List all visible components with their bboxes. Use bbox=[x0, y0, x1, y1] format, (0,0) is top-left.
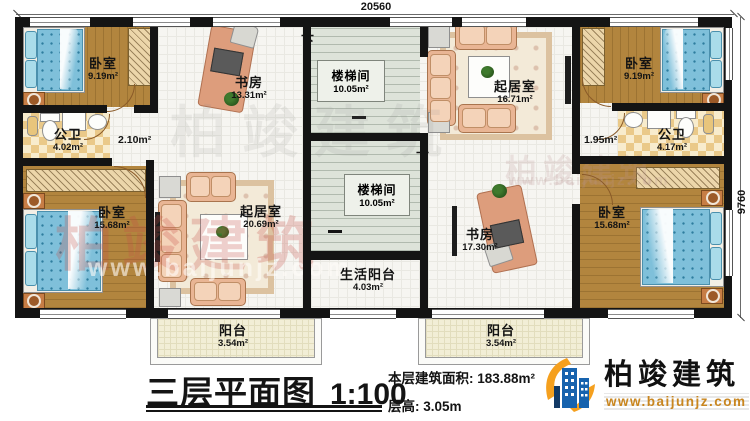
stair-arrow bbox=[352, 116, 366, 119]
sofa-cushion bbox=[430, 77, 451, 99]
room-area: 4.02m² bbox=[40, 143, 96, 154]
wall-interior bbox=[303, 251, 428, 260]
pillow bbox=[710, 212, 722, 245]
brand-website: www.baijunjz.com bbox=[604, 393, 749, 410]
room-name: 阳台 bbox=[196, 324, 270, 339]
dimension-top-value: 20560 bbox=[350, 1, 402, 13]
plant-icon bbox=[492, 184, 507, 198]
floor-area-label: 本层建筑面积: bbox=[388, 371, 474, 386]
window bbox=[213, 17, 280, 27]
room-name: 楼梯间 bbox=[331, 67, 370, 84]
sofa-cushion bbox=[459, 25, 485, 45]
water-heater bbox=[27, 116, 38, 136]
wall-interior bbox=[134, 105, 158, 113]
wall-interior bbox=[572, 17, 580, 174]
sofa-cushion bbox=[430, 54, 451, 76]
room-name: 起居室 bbox=[478, 80, 552, 95]
room-name: 公卫 bbox=[40, 128, 96, 143]
lamp bbox=[27, 194, 41, 208]
floor-info: 本层建筑面积: 183.88m² 层高: 3.05m bbox=[388, 367, 535, 415]
room-area: 13.31m² bbox=[214, 91, 284, 102]
window bbox=[462, 17, 526, 27]
sofa-cushion bbox=[487, 108, 511, 128]
pillow bbox=[25, 31, 37, 59]
title-underline bbox=[146, 410, 382, 412]
dimension-tick bbox=[737, 13, 745, 21]
room-label-bath-left: 公卫 4.02m² bbox=[40, 128, 96, 153]
sliding-door bbox=[432, 309, 544, 319]
room-name: 阳台 bbox=[464, 324, 538, 339]
room-name: 卧室 bbox=[78, 206, 146, 221]
room-area: 9.19m² bbox=[606, 72, 672, 83]
room-label-bedroom-top-right: 卧室 9.19m² bbox=[606, 57, 672, 82]
wall-interior bbox=[15, 105, 107, 113]
window bbox=[610, 17, 698, 27]
room-area: 9.19m² bbox=[72, 72, 134, 83]
sofa-cushion bbox=[190, 176, 210, 197]
computer-monitor-icon bbox=[210, 48, 244, 77]
brand-logo-block: 柏竣建筑 www.baijunjz.com bbox=[540, 356, 749, 414]
room-label-living-lower: 起居室 20.69m² bbox=[224, 205, 298, 230]
room-area: 4.03m² bbox=[316, 283, 420, 294]
wall-interior bbox=[150, 17, 158, 113]
room-name: 楼梯间 bbox=[357, 181, 396, 198]
pillow bbox=[710, 31, 722, 59]
room-name: 生活阳台 bbox=[316, 268, 420, 283]
pillow bbox=[710, 247, 722, 280]
water-heater bbox=[703, 114, 714, 134]
window bbox=[608, 309, 694, 319]
floor-height-label: 层高: bbox=[388, 399, 420, 414]
room-area: 10.05m² bbox=[359, 198, 394, 209]
room-label-study-upper: 书房 13.31m² bbox=[214, 76, 284, 101]
pillow bbox=[25, 214, 37, 249]
wardrobe bbox=[636, 167, 720, 189]
room-area: 15.68m² bbox=[576, 221, 648, 232]
room-name: 卧室 bbox=[606, 57, 672, 72]
sofa-cushion bbox=[486, 25, 512, 45]
sliding-door bbox=[168, 309, 280, 319]
room-label-balcony-right: 阳台 3.54m² bbox=[464, 324, 538, 349]
dimension-right-value: 9760 bbox=[736, 182, 748, 222]
stairs-down-label: 下 bbox=[416, 147, 429, 166]
window bbox=[30, 17, 90, 27]
floor-height-value: 3.05m bbox=[423, 399, 461, 414]
wall-interior bbox=[612, 103, 724, 111]
sofa-cushion bbox=[462, 108, 486, 128]
room-area: 3.54m² bbox=[196, 339, 270, 350]
room-name: 公卫 bbox=[644, 128, 700, 143]
title-underline bbox=[146, 405, 382, 408]
window bbox=[133, 17, 190, 27]
tv-icon bbox=[565, 56, 571, 104]
room-label-bedroom-bottom-right: 卧室 15.68m² bbox=[576, 206, 648, 231]
room-label-living-upper: 起居室 16.71m² bbox=[478, 80, 552, 105]
sliding-door bbox=[330, 309, 396, 319]
window bbox=[725, 210, 733, 276]
sofa-cushion bbox=[161, 254, 182, 278]
wall-exterior-left bbox=[15, 17, 23, 318]
wall-interior bbox=[303, 141, 311, 308]
lamp bbox=[27, 294, 41, 308]
side-table bbox=[159, 288, 181, 307]
window bbox=[390, 17, 452, 27]
sofa-cushion bbox=[218, 282, 241, 301]
sofa-cushion bbox=[161, 204, 182, 228]
room-area: 10.05m² bbox=[333, 84, 368, 95]
sofa-cushion bbox=[194, 282, 217, 301]
room-label-bath-right: 公卫 4.17m² bbox=[644, 128, 700, 153]
wall-interior bbox=[15, 158, 112, 166]
room-name: 书房 bbox=[214, 76, 284, 91]
room-area: 15.68m² bbox=[78, 221, 146, 232]
room-label-balcony-left: 阳台 3.54m² bbox=[196, 324, 270, 349]
sofa-cushion bbox=[161, 229, 182, 253]
room-name: 卧室 bbox=[576, 206, 648, 221]
brand-name: 柏竣建筑 bbox=[604, 361, 749, 390]
room-label-service-balcony: 生活阳台 4.03m² bbox=[316, 268, 420, 293]
floor-area-value: 183.88m² bbox=[477, 371, 535, 386]
pillow bbox=[25, 251, 37, 286]
stair-arrow bbox=[328, 230, 342, 233]
window bbox=[725, 28, 733, 80]
wall-interior bbox=[146, 160, 154, 308]
room-label-study-lower: 书房 17.30m² bbox=[444, 228, 516, 253]
stair-landing-upper: 楼梯间 10.05m² bbox=[317, 60, 385, 102]
dimension-top-line bbox=[16, 14, 734, 15]
floor-height-line: 层高: 3.05m bbox=[388, 395, 535, 415]
wall-interior bbox=[580, 156, 724, 164]
lamp bbox=[706, 289, 720, 303]
sofa-cushion bbox=[211, 176, 231, 197]
hall-right-area: 1.95m² bbox=[584, 134, 617, 146]
lamp bbox=[706, 191, 720, 205]
pillow bbox=[25, 60, 37, 88]
brand-text-block: 柏竣建筑 www.baijunjz.com bbox=[604, 361, 749, 410]
sofa-cushion bbox=[430, 100, 451, 122]
room-name: 书房 bbox=[444, 228, 516, 243]
basin-icon bbox=[624, 112, 643, 128]
plant-icon bbox=[481, 66, 494, 78]
dimension-tick bbox=[737, 314, 745, 322]
floor-plan-sheet: 20560 9760 bbox=[0, 0, 750, 421]
side-table bbox=[428, 26, 450, 48]
room-name: 起居室 bbox=[224, 205, 298, 220]
room-area: 16.71m² bbox=[478, 95, 552, 106]
stair-landing-lower: 楼梯间 10.05m² bbox=[344, 174, 410, 216]
tv-icon bbox=[155, 212, 160, 262]
room-area: 17.30m² bbox=[444, 243, 516, 254]
room-area: 4.17m² bbox=[644, 143, 700, 154]
room-area: 3.54m² bbox=[464, 339, 538, 350]
dimension-right-line bbox=[740, 17, 741, 318]
window bbox=[40, 309, 126, 319]
hall-left-area: 2.10m² bbox=[118, 134, 151, 146]
room-label-bedroom-top-left: 卧室 9.19m² bbox=[72, 57, 134, 82]
stairs-down-label: 下 bbox=[301, 30, 314, 49]
wall-interior bbox=[303, 133, 428, 141]
floor-area-line: 本层建筑面积: 183.88m² bbox=[388, 367, 535, 387]
room-name: 卧室 bbox=[72, 57, 134, 72]
room-area: 20.69m² bbox=[224, 220, 298, 231]
side-table bbox=[159, 176, 181, 198]
brand-logo-icon bbox=[540, 356, 598, 414]
room-label-bedroom-bottom-left: 卧室 15.68m² bbox=[78, 206, 146, 231]
pillow bbox=[710, 60, 722, 88]
